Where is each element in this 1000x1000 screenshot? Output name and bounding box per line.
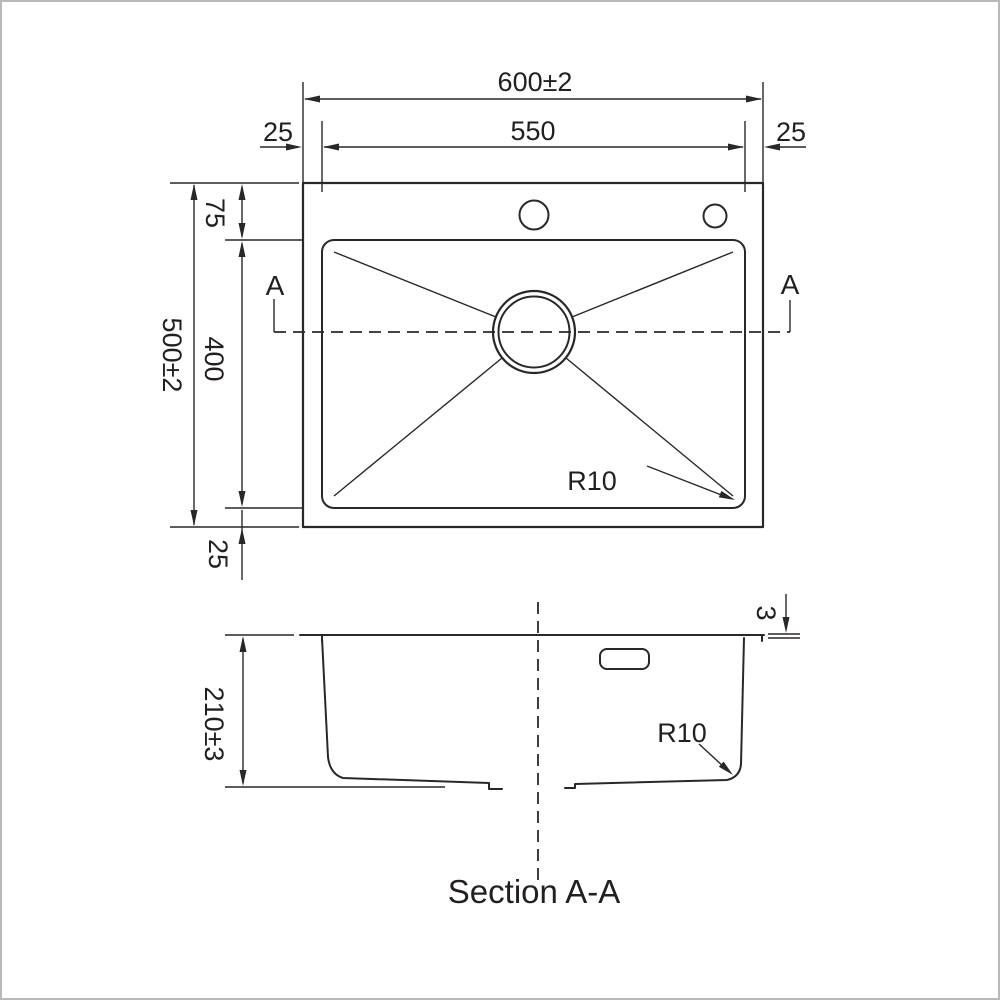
- depth-dim-label: 210±3: [199, 687, 229, 762]
- section-marker-left-label: A: [266, 270, 285, 301]
- bottom-margin-dim-label: 25: [203, 539, 233, 569]
- sink-drawing: A A R10 600±2 550 25: [2, 2, 998, 998]
- bowl-width-dim-label: 550: [510, 116, 555, 146]
- dim-bottom-margin: [239, 510, 246, 580]
- dim-overall-height: [170, 183, 299, 527]
- section-caption: Section A-A: [448, 873, 620, 910]
- section-corner-radius-label: R10: [657, 718, 707, 748]
- section-bowl-right-profile: [565, 638, 744, 788]
- section-marker-right-label: A: [781, 269, 800, 300]
- section-line: [274, 299, 790, 332]
- overflow-hole: [600, 649, 649, 669]
- top-view: A A R10 600±2 550 25: [157, 67, 806, 580]
- bowl-height-dim-label: 400: [199, 336, 229, 381]
- section-view: 210±3 3 R10 Section A-A: [199, 594, 800, 910]
- overall-height-dim-label: 500±2: [157, 318, 187, 393]
- radius-leader-line: [647, 466, 724, 496]
- left-margin-dim-label: 25: [263, 117, 293, 147]
- top-margin-dim-label: 75: [200, 198, 230, 228]
- technical-drawing-canvas: A A R10 600±2 550 25: [0, 0, 1000, 1000]
- right-margin-dim-label: 25: [776, 117, 806, 147]
- overall-width-dim-label: 600±2: [498, 67, 573, 97]
- dim-bowl-height: [225, 241, 303, 508]
- dim-depth: [225, 635, 294, 786]
- faucet-hole-left: [520, 201, 549, 230]
- section-bowl-left-profile: [322, 638, 502, 789]
- dim-top-margin: [225, 184, 303, 240]
- sink-outer-rect: [303, 183, 763, 527]
- faucet-hole-right: [704, 205, 727, 228]
- corner-radius-label: R10: [567, 466, 617, 496]
- rim-thickness-dim-label: 3: [751, 605, 781, 620]
